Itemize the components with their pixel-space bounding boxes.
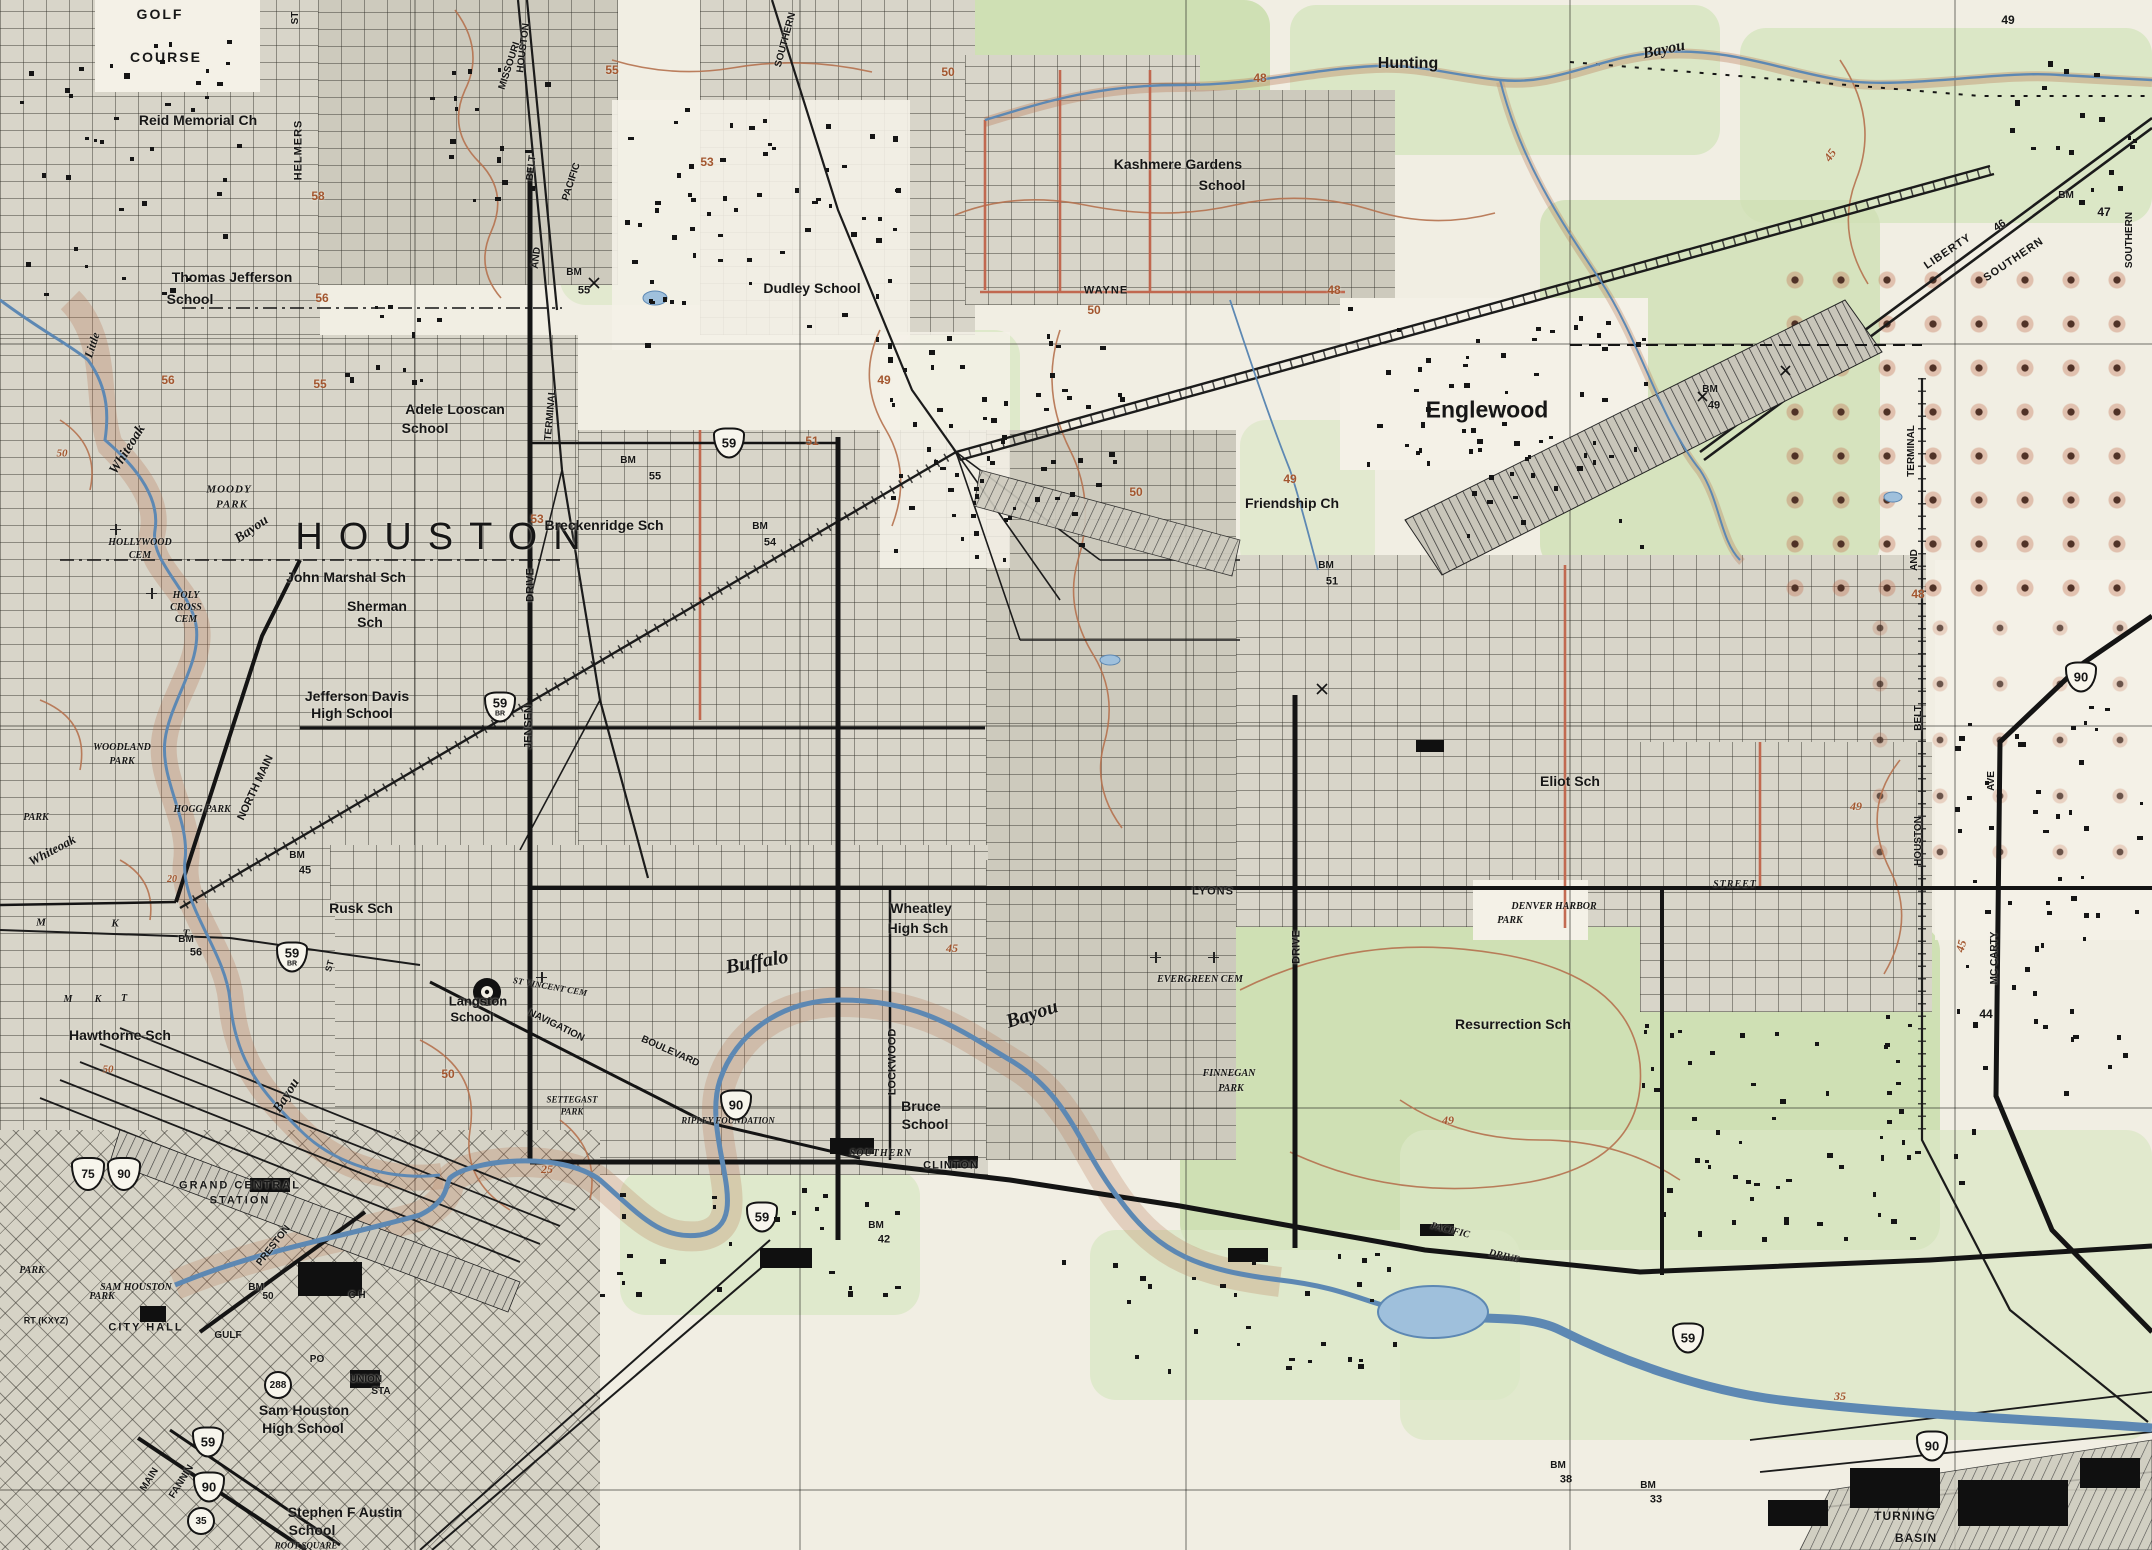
house-symbol <box>1602 398 1608 402</box>
house-symbol <box>1003 558 1006 562</box>
house-symbol <box>2010 128 2015 133</box>
house-symbol <box>1466 356 1469 359</box>
house-symbol <box>2043 1025 2048 1029</box>
house-symbol <box>119 208 124 212</box>
house-symbol <box>223 234 228 239</box>
house-symbol <box>1881 1155 1885 1160</box>
house-symbol <box>1739 1141 1742 1144</box>
house-symbol <box>971 514 976 518</box>
house-symbol <box>380 315 384 318</box>
house-symbol <box>1252 1260 1255 1265</box>
house-symbol <box>842 165 847 168</box>
house-symbol <box>1449 384 1454 388</box>
house-symbol <box>1246 1326 1251 1329</box>
house-symbol <box>1521 520 1526 525</box>
house-symbol <box>628 137 633 140</box>
house-symbol <box>2035 946 2038 951</box>
house-symbol <box>1957 1009 1960 1014</box>
house-symbol <box>891 496 896 499</box>
house-symbol <box>1477 439 1483 444</box>
house-symbol <box>1305 1291 1311 1296</box>
house-symbol <box>417 318 420 322</box>
house-symbol <box>1716 1130 1720 1135</box>
house-symbol <box>545 82 551 87</box>
house-symbol <box>1072 512 1078 517</box>
house-symbol <box>712 1196 718 1200</box>
house-symbol <box>2099 117 2105 122</box>
house-symbol <box>2058 877 2062 881</box>
house-symbol <box>685 108 689 112</box>
house-symbol <box>1839 1165 1844 1169</box>
house-symbol <box>2036 790 2042 795</box>
house-symbol <box>1751 1083 1756 1087</box>
house-symbol <box>1067 396 1073 400</box>
house-symbol <box>849 1286 852 1290</box>
house-symbol <box>1531 473 1534 478</box>
house-symbol <box>1967 796 1972 800</box>
house-symbol <box>1678 1030 1682 1033</box>
house-symbol <box>227 40 232 44</box>
house-symbol <box>674 121 678 125</box>
house-symbol <box>376 365 380 370</box>
house-symbol <box>848 1291 854 1296</box>
house-symbol <box>763 119 767 124</box>
house-symbol <box>1688 1061 1692 1066</box>
house-symbol <box>1386 370 1391 375</box>
house-symbol <box>1377 424 1383 428</box>
house-symbol <box>1973 880 1977 884</box>
house-symbol <box>187 278 190 282</box>
house-symbol <box>1698 1231 1702 1236</box>
house-symbol <box>1532 338 1537 342</box>
house-symbol <box>1467 534 1471 539</box>
house-symbol <box>947 336 952 341</box>
house-symbol <box>1100 346 1106 350</box>
house-symbol <box>829 204 833 208</box>
house-symbol <box>1118 393 1123 397</box>
house-symbol <box>1776 1186 1780 1190</box>
house-symbol <box>403 368 406 372</box>
house-symbol <box>2091 188 2094 191</box>
house-symbol <box>876 337 880 342</box>
house-symbol <box>2117 1035 2121 1040</box>
house-symbol <box>2081 876 2085 879</box>
house-symbol <box>2041 943 2044 948</box>
house-symbol <box>718 234 722 237</box>
house-symbol <box>1086 405 1091 409</box>
house-symbol <box>124 73 130 78</box>
house-symbol <box>1393 1342 1397 1346</box>
house-symbol <box>2128 136 2131 140</box>
house-symbol <box>909 506 915 510</box>
house-symbol <box>1989 826 1994 830</box>
house-symbol <box>1510 472 1514 476</box>
house-symbol <box>2079 760 2085 765</box>
house-symbol <box>929 350 934 355</box>
house-symbol <box>1234 1293 1237 1297</box>
house-symbol <box>2084 721 2088 725</box>
house-symbol <box>1733 1175 1738 1179</box>
house-symbol <box>1079 543 1085 547</box>
house-symbol <box>974 531 979 536</box>
house-symbol <box>878 217 882 221</box>
house-symbol <box>455 107 459 111</box>
house-symbol <box>1602 347 1608 351</box>
house-symbol <box>1966 965 1969 968</box>
house-symbol <box>1462 429 1466 432</box>
house-symbol <box>1135 1355 1139 1358</box>
house-symbol <box>940 467 945 471</box>
house-symbol <box>1008 516 1012 520</box>
house-symbol <box>412 380 418 385</box>
house-symbol <box>2033 991 2037 996</box>
house-symbol <box>1896 1082 1901 1085</box>
house-symbol <box>1194 1329 1197 1334</box>
house-symbol <box>114 117 119 120</box>
house-symbol <box>1036 393 1041 398</box>
house-symbol <box>437 318 443 322</box>
house-symbol <box>1550 330 1554 333</box>
house-symbol <box>42 173 46 178</box>
house-symbol <box>223 178 228 182</box>
house-symbol <box>2108 1065 2112 1069</box>
house-symbol <box>1062 1260 1066 1265</box>
house-symbol <box>1525 457 1529 461</box>
house-symbol <box>206 69 210 73</box>
house-symbol <box>1844 1237 1847 1241</box>
house-symbol <box>829 1271 834 1275</box>
house-symbol <box>1644 382 1647 386</box>
house-symbol <box>65 88 69 93</box>
house-symbol <box>2071 896 2077 901</box>
house-symbol <box>154 44 158 48</box>
house-symbol <box>1464 383 1470 388</box>
house-symbol <box>1780 1099 1785 1104</box>
house-symbol <box>2031 147 2037 150</box>
house-symbol <box>691 198 696 202</box>
house-symbol <box>1985 910 1991 913</box>
house-symbol <box>1972 1129 1975 1134</box>
house-symbol <box>1692 1117 1696 1121</box>
house-symbol <box>237 144 242 148</box>
house-symbol <box>1660 1212 1665 1217</box>
house-symbol <box>1002 435 1007 440</box>
house-symbol <box>412 332 415 337</box>
house-symbol <box>495 197 501 201</box>
house-symbol <box>1579 316 1583 320</box>
house-symbol <box>160 60 165 64</box>
house-symbol <box>450 139 456 143</box>
house-symbol <box>892 403 895 407</box>
house-symbol <box>689 164 695 168</box>
house-symbol <box>600 1294 605 1297</box>
house-symbol <box>2070 1009 2074 1014</box>
house-symbol <box>1593 460 1596 465</box>
house-symbol <box>913 422 917 427</box>
house-symbol <box>2015 100 2020 105</box>
house-symbol <box>1985 781 1989 785</box>
house-symbol <box>655 208 659 213</box>
house-symbol <box>660 1259 665 1264</box>
house-symbol <box>717 1287 722 1292</box>
house-symbol <box>816 198 820 201</box>
house-symbol <box>1348 1357 1352 1362</box>
house-symbol <box>1078 458 1084 463</box>
house-symbol <box>960 365 965 369</box>
house-symbol <box>1619 519 1622 524</box>
house-symbol <box>449 155 454 159</box>
house-symbol <box>528 150 532 153</box>
house-symbol <box>1609 455 1613 458</box>
house-symbol <box>2080 113 2085 118</box>
house-symbol <box>1514 441 1520 446</box>
house-symbol <box>1096 483 1102 487</box>
house-symbol <box>1168 1369 1171 1374</box>
house-symbol <box>1762 1237 1767 1242</box>
house-symbol <box>2033 810 2038 815</box>
house-symbol <box>980 479 984 483</box>
house-symbol <box>792 1211 796 1215</box>
house-symbol <box>1654 1088 1659 1092</box>
house-symbol <box>1359 1359 1364 1362</box>
house-symbol <box>1127 1300 1131 1303</box>
house-symbol <box>130 157 134 162</box>
house-symbol <box>718 259 722 263</box>
house-symbol <box>1642 1083 1645 1087</box>
house-symbol <box>2015 734 2019 739</box>
house-symbol <box>896 188 902 193</box>
house-symbol <box>150 147 154 152</box>
house-symbol <box>196 81 201 85</box>
house-symbol <box>1907 1155 1911 1160</box>
house-symbol <box>937 408 943 412</box>
house-symbol <box>893 228 897 231</box>
house-symbol <box>1109 452 1115 457</box>
house-symbol <box>983 417 987 420</box>
house-symbol <box>100 140 104 144</box>
house-symbol <box>1784 1217 1789 1222</box>
house-symbol <box>169 42 172 47</box>
house-symbol <box>955 473 959 477</box>
house-symbol <box>1426 407 1431 412</box>
house-symbol <box>707 212 711 216</box>
house-symbol <box>1051 460 1057 464</box>
house-symbol <box>29 71 33 76</box>
house-symbol <box>2140 802 2143 805</box>
house-symbol <box>1606 321 1611 324</box>
house-symbol <box>497 157 501 162</box>
house-symbol <box>2118 186 2123 191</box>
house-symbol <box>1044 408 1048 411</box>
house-symbol <box>1644 1030 1647 1034</box>
house-symbol <box>693 253 696 258</box>
house-symbol <box>375 306 378 309</box>
house-symbol <box>1878 1213 1881 1217</box>
house-symbol <box>475 108 479 111</box>
house-symbol <box>1358 1364 1364 1369</box>
house-symbol <box>1746 1180 1751 1184</box>
house-symbol <box>1536 327 1541 331</box>
house-symbol <box>903 368 907 372</box>
house-symbol <box>1260 1259 1265 1262</box>
house-symbol <box>1593 441 1596 445</box>
house-symbol <box>1004 401 1009 406</box>
house-symbol <box>895 1286 901 1289</box>
house-symbol <box>2048 61 2052 66</box>
house-symbol <box>1667 1188 1672 1193</box>
house-symbol <box>1886 1015 1889 1019</box>
house-symbol <box>865 1202 869 1207</box>
house-symbol <box>1370 1299 1374 1302</box>
house-symbol <box>1348 307 1353 311</box>
house-symbol <box>805 228 811 231</box>
house-symbol <box>26 262 30 266</box>
house-symbol <box>454 96 457 101</box>
house-symbol <box>85 265 88 268</box>
house-symbol <box>1113 460 1117 463</box>
house-symbol <box>826 124 831 129</box>
house-symbol <box>894 549 898 553</box>
house-symbol <box>500 146 504 151</box>
house-symbol <box>1973 1022 1978 1027</box>
house-symbol <box>2022 742 2026 747</box>
house-symbol <box>2025 967 2030 972</box>
house-symbol <box>645 343 651 347</box>
house-symbol <box>2083 937 2087 941</box>
house-symbol <box>1387 1267 1391 1272</box>
house-symbol <box>1915 1151 1921 1154</box>
house-symbol <box>749 126 755 130</box>
house-symbol <box>617 1272 623 1275</box>
house-symbol <box>2069 810 2073 815</box>
house-symbol <box>812 201 818 204</box>
house-symbol <box>498 68 502 72</box>
house-symbol <box>1362 1258 1367 1263</box>
house-symbol <box>632 260 638 264</box>
house-symbol <box>677 173 681 178</box>
house-symbol <box>205 96 209 99</box>
house-symbol <box>1237 1343 1241 1347</box>
house-symbol <box>774 1217 780 1222</box>
house-symbol <box>1001 439 1005 444</box>
house-symbol <box>934 460 938 464</box>
house-symbol <box>991 418 997 423</box>
house-symbol <box>1887 1120 1892 1124</box>
house-symbol <box>1321 1342 1326 1346</box>
house-symbol <box>66 175 71 180</box>
house-symbol <box>948 488 953 492</box>
house-symbol <box>1732 1220 1735 1225</box>
house-symbol <box>1416 451 1419 455</box>
house-symbol <box>650 280 654 284</box>
house-symbol <box>74 247 78 252</box>
house-symbol <box>1308 1360 1312 1363</box>
house-symbol <box>1375 1253 1380 1256</box>
house-symbol <box>682 301 686 305</box>
house-symbol <box>893 136 898 141</box>
house-symbol <box>1642 338 1646 341</box>
house-symbol <box>1710 1051 1714 1055</box>
house-symbol <box>627 1254 633 1259</box>
house-symbol <box>888 343 892 348</box>
house-symbol <box>2071 1037 2075 1042</box>
house-symbol <box>851 232 856 236</box>
house-symbol <box>1062 389 1067 392</box>
house-symbol <box>1786 1179 1791 1183</box>
house-symbol <box>1695 1158 1700 1163</box>
house-dots-layer <box>0 0 2152 1550</box>
house-symbol <box>165 103 171 106</box>
house-symbol <box>1983 1066 1988 1070</box>
house-symbol <box>2084 826 2089 831</box>
house-symbol <box>217 192 222 196</box>
house-symbol <box>622 1214 626 1218</box>
house-symbol <box>1070 492 1075 497</box>
house-symbol <box>2094 73 2100 78</box>
house-symbol <box>949 424 953 427</box>
house-symbol <box>420 379 424 383</box>
house-symbol <box>1419 448 1422 453</box>
house-symbol <box>795 188 800 193</box>
house-symbol <box>2043 830 2049 833</box>
house-symbol <box>2073 1035 2079 1039</box>
house-symbol <box>1472 491 1477 496</box>
house-symbol <box>862 217 867 220</box>
house-symbol <box>1954 1154 1957 1159</box>
house-symbol <box>2089 706 2094 709</box>
house-symbol <box>1140 1276 1146 1281</box>
house-symbol <box>1426 358 1432 362</box>
house-symbol <box>85 137 90 140</box>
house-symbol <box>531 186 535 191</box>
house-symbol <box>1708 1165 1711 1169</box>
house-symbol <box>1959 736 1964 741</box>
house-symbol <box>1580 392 1584 397</box>
house-symbol <box>1910 1237 1916 1241</box>
house-symbol <box>2008 901 2012 905</box>
house-symbol <box>1645 1024 1648 1028</box>
house-symbol <box>1534 373 1539 377</box>
house-symbol <box>663 297 668 302</box>
house-symbol <box>2096 913 2101 918</box>
house-symbol <box>1577 466 1583 471</box>
house-symbol <box>1469 449 1472 453</box>
house-symbol <box>723 196 727 200</box>
house-symbol <box>1899 1109 1904 1114</box>
house-symbol <box>1827 1153 1833 1158</box>
house-symbol <box>763 152 768 156</box>
house-symbol <box>1636 342 1641 347</box>
house-symbol <box>1414 389 1419 393</box>
house-symbol <box>1826 1091 1829 1095</box>
house-symbol <box>1775 1032 1778 1037</box>
house-symbol <box>226 62 229 66</box>
house-symbol <box>473 199 477 203</box>
house-symbol <box>1574 325 1578 330</box>
house-symbol <box>1880 1136 1883 1140</box>
house-symbol <box>1815 1042 1818 1045</box>
house-symbol <box>931 365 934 370</box>
house-symbol <box>191 108 195 112</box>
house-symbol <box>2095 728 2098 732</box>
house-symbol <box>1584 453 1588 458</box>
house-symbol <box>1476 339 1480 343</box>
topo-map-canvas[interactable]: GOLFCOURSEReid Memorial ChThomas Jeffers… <box>0 0 2152 1550</box>
house-symbol <box>1750 1197 1753 1201</box>
house-symbol <box>2012 985 2016 990</box>
house-symbol <box>625 220 630 225</box>
house-symbol <box>961 537 964 541</box>
